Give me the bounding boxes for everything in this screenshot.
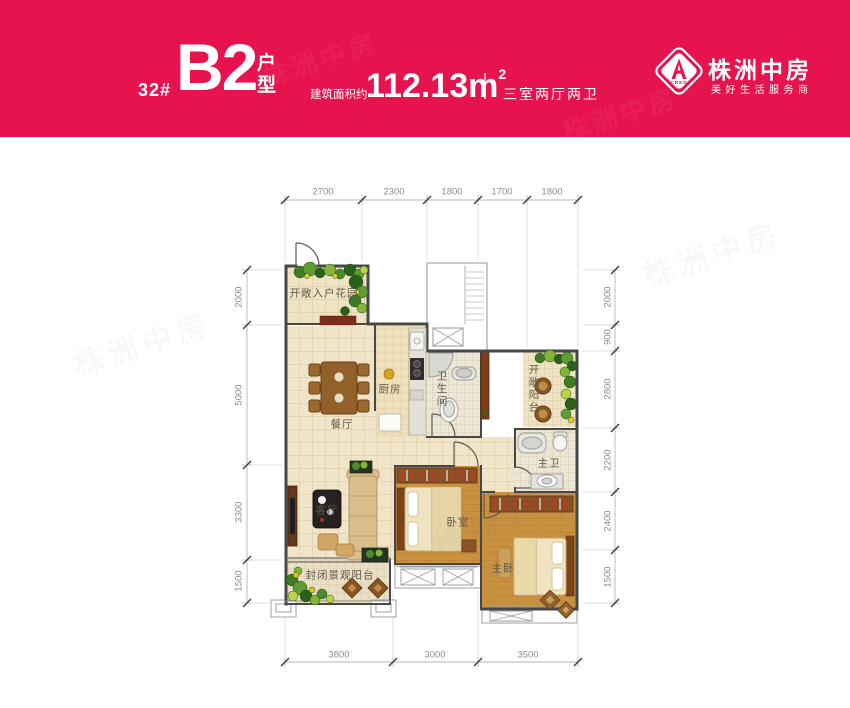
room-label-master-bath: 主卫 <box>538 456 561 471</box>
room-label-dining: 餐厅 <box>331 417 354 432</box>
dim-left-1: 2000 <box>234 286 245 307</box>
room-label-open-balcony: 开敞阳台 <box>527 364 542 414</box>
ac-platform <box>395 566 481 588</box>
dim-top-1: 2700 <box>312 187 333 198</box>
dining-table <box>309 362 369 414</box>
room-label-enclosed-balcony: 封闭景观阳台 <box>306 568 375 583</box>
room-label-bathroom: 卫生间 <box>435 370 450 408</box>
dim-right-5: 2400 <box>603 510 614 531</box>
floorplan-page: 株洲中房 株洲中房 株洲中房 <box>0 0 850 708</box>
unit-type-title: B2 <box>176 34 256 100</box>
brand-slogan: 美好生活服务商 <box>711 81 813 96</box>
logo-monogram-text: CRED <box>670 80 687 86</box>
dim-left-4: 1500 <box>234 570 245 591</box>
divider <box>484 73 486 99</box>
layout-spec: 三室两厅两卫 <box>503 84 599 104</box>
dim-right-6: 1500 <box>603 566 614 587</box>
banner: 株洲中房 株洲中房 32# B2 户型 建筑面积约 112.13m2 三室两厅两… <box>0 0 850 137</box>
room-label-living: 客厅 <box>316 503 339 518</box>
room-label-entry-garden: 开敞入户花园 <box>290 286 359 301</box>
dim-left-2: 5000 <box>234 384 245 405</box>
unit-type-suffix: 户型 <box>257 53 279 97</box>
area-superscript: 2 <box>498 66 506 82</box>
area-label: 建筑面积约 <box>310 86 368 102</box>
brand-name: 株洲中房 <box>708 51 812 85</box>
dim-bottom-3: 3500 <box>517 650 538 661</box>
dim-bottom-2: 3000 <box>424 650 445 661</box>
building-number: 32# <box>138 80 171 101</box>
entry-mat <box>320 316 356 325</box>
room-label-master-bedroom: 主卧 <box>492 561 515 576</box>
dim-top-4: 1700 <box>491 187 512 198</box>
stair-elevator-core <box>427 263 487 351</box>
dim-bottom-1: 3800 <box>328 650 349 661</box>
brand-logo-icon: CRED <box>655 47 703 95</box>
dim-left-3: 3300 <box>234 501 245 522</box>
dim-top-3: 1800 <box>441 187 462 198</box>
dim-right-1: 2000 <box>603 286 614 307</box>
dim-right-3: 2800 <box>603 378 614 399</box>
dim-right-4: 2200 <box>603 449 614 470</box>
dim-top-5: 1800 <box>541 187 562 198</box>
dim-right-2: 900 <box>603 329 614 345</box>
dim-top-2: 2300 <box>383 187 404 198</box>
room-label-kitchen: 厨房 <box>379 382 402 397</box>
